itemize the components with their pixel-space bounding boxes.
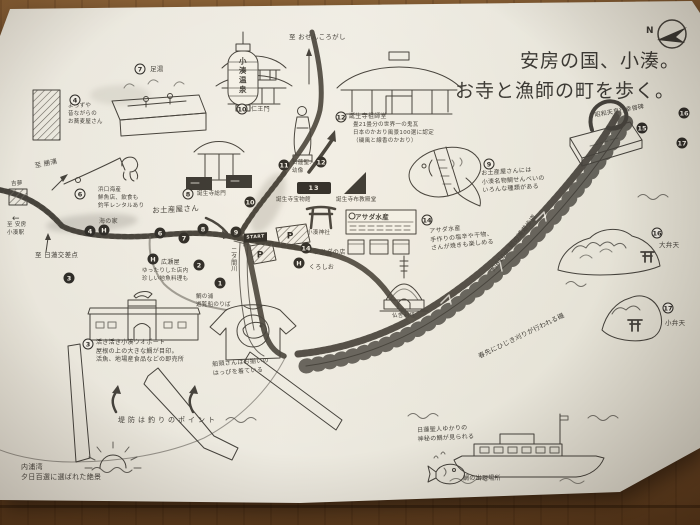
map-marker-16-filled: 16 — [679, 108, 690, 119]
map-marker-7-filled: 7 — [179, 233, 190, 244]
map-marker-10-open: 10 — [237, 104, 248, 115]
map-marker-4-filled: 4 — [85, 226, 96, 237]
map-marker-2-filled: 2 — [194, 260, 205, 271]
map-marker-16-open: 16 — [652, 228, 663, 239]
map-marker-17-open: 17 — [663, 303, 674, 314]
map-marker-8-open: 8 — [183, 189, 194, 200]
map-marker-14-open: 14 — [422, 215, 433, 226]
map-marker-4-open: 4 — [70, 95, 81, 106]
map-marker-H-filled: H — [148, 254, 159, 265]
map-marker-11-filled: 11 — [279, 160, 290, 171]
paper-shadow: 安房の国、小湊。 お寺と漁師の町を歩く。 N START 至 おせんころがし昭和… — [0, 0, 700, 525]
map-marker-P-p: P — [255, 250, 266, 261]
map-marker-14-filled: 14 — [301, 243, 312, 254]
photo-of-map: 安房の国、小湊。 お寺と漁師の町を歩く。 N START 至 おせんころがし昭和… — [0, 0, 700, 525]
map-marker-7-open: 7 — [135, 64, 146, 75]
map-marker-10-filled: 10 — [245, 197, 256, 208]
map-marker-12-filled: 12 — [316, 157, 327, 168]
map-marker-3-open: 3 — [83, 339, 94, 350]
map-marker-6-filled: 6 — [155, 228, 166, 239]
map-paper: 安房の国、小湊。 お寺と漁師の町を歩く。 N START 至 おせんころがし昭和… — [0, 0, 700, 525]
map-marker-8-filled: 8 — [198, 224, 209, 235]
map-marker-9-open: 9 — [484, 159, 495, 170]
map-marker-17-filled: 17 — [677, 138, 688, 149]
map-marker-1-filled: 1 — [215, 278, 226, 289]
map-marker-P-p: P — [285, 231, 296, 242]
map-marker-H-filled: H — [99, 225, 110, 236]
marker-layer: 7101289143461617123467891011121314151617… — [0, 0, 700, 525]
map-marker-13-box: 13 — [297, 182, 331, 194]
map-marker-12-open: 12 — [336, 112, 347, 123]
map-marker-3-filled: 3 — [64, 273, 75, 284]
map-marker-15-filled: 15 — [637, 123, 648, 134]
map-marker-6-open: 6 — [75, 189, 86, 200]
map-marker-H-filled: H — [294, 258, 305, 269]
map-marker-9-filled: 9 — [231, 227, 242, 238]
